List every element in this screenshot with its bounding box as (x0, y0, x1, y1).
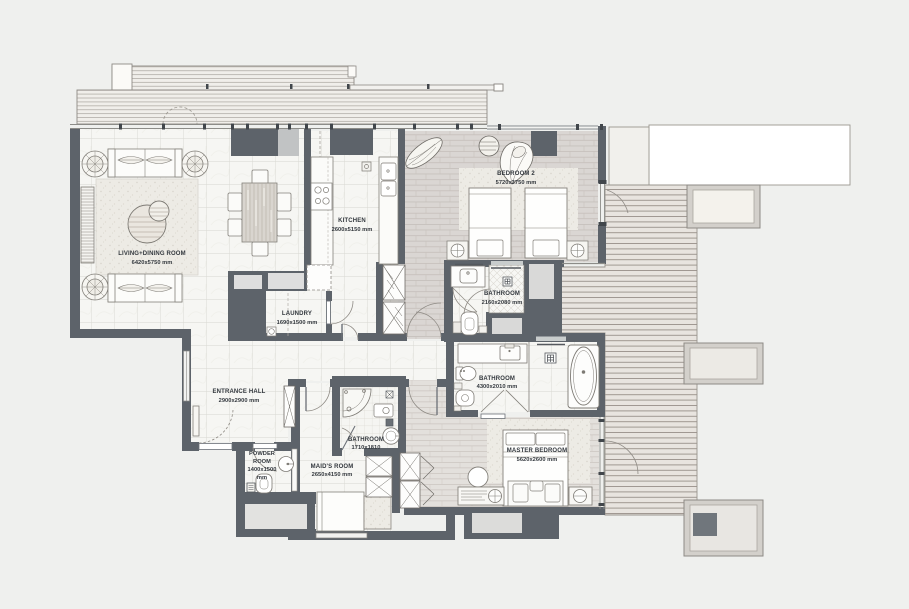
svg-text:mm: mm (257, 475, 267, 481)
svg-text:KITCHEN: KITCHEN (338, 218, 366, 224)
svg-text:ROOM: ROOM (253, 459, 271, 465)
svg-text:6420x5750 mm: 6420x5750 mm (132, 260, 173, 266)
svg-text:MAID'S ROOM: MAID'S ROOM (311, 464, 354, 470)
svg-text:BATHROOM: BATHROOM (484, 291, 520, 297)
svg-text:LIVING+DINING ROOM: LIVING+DINING ROOM (118, 251, 186, 257)
svg-text:1710x1810: 1710x1810 (352, 445, 381, 451)
svg-text:2650x4150 mm: 2650x4150 mm (312, 472, 353, 478)
svg-text:2600x5150 mm: 2600x5150 mm (332, 227, 373, 233)
svg-text:BEDROOM 2: BEDROOM 2 (497, 171, 535, 177)
svg-text:BATHROOM: BATHROOM (348, 437, 384, 443)
svg-text:POWDER: POWDER (249, 451, 275, 457)
svg-text:BATHROOM: BATHROOM (479, 376, 515, 382)
svg-text:2160x2080 mm: 2160x2080 mm (482, 300, 523, 306)
svg-text:1690x1500 mm: 1690x1500 mm (277, 320, 318, 326)
svg-text:MASTER BEDROOM: MASTER BEDROOM (507, 448, 567, 454)
svg-text:2900x2900 mm: 2900x2900 mm (219, 398, 260, 404)
svg-text:4300x2010 mm: 4300x2010 mm (477, 384, 518, 390)
svg-text:1400x1500: 1400x1500 (248, 467, 277, 473)
svg-text:LAUNDRY: LAUNDRY (282, 311, 312, 317)
svg-text:ENTRANCE HALL: ENTRANCE HALL (213, 389, 266, 395)
svg-text:5620x2600 mm: 5620x2600 mm (517, 457, 558, 463)
svg-text:5720x3750 mm: 5720x3750 mm (496, 180, 537, 186)
